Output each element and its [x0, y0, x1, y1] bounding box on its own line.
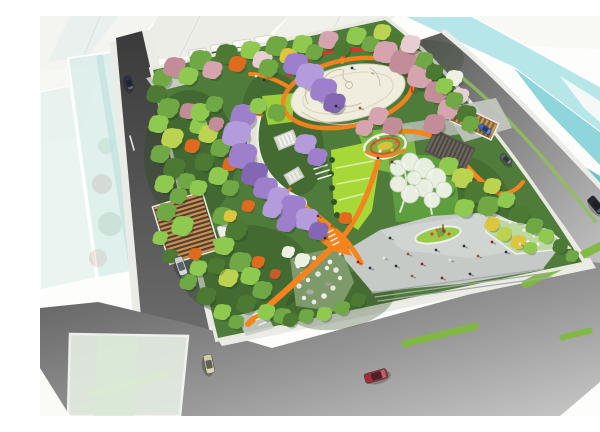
tree-canopy	[264, 288, 272, 296]
tree-canopy	[307, 315, 313, 321]
tree-canopy	[217, 238, 225, 246]
white-blossoms	[315, 271, 321, 277]
tree-canopy	[364, 36, 371, 43]
tree-canopy	[438, 78, 445, 85]
tree-canopy	[243, 268, 251, 276]
tree-canopy	[567, 250, 573, 256]
tree-canopy	[500, 192, 507, 199]
tree-canopy	[216, 304, 223, 311]
person-figure	[395, 265, 398, 268]
tree-canopy	[313, 79, 324, 90]
tree-canopy	[531, 247, 536, 252]
tree-canopy	[160, 99, 169, 108]
tree-canopy	[522, 212, 530, 220]
tree-canopy	[343, 307, 349, 313]
tree-canopy	[270, 66, 278, 74]
tree-canopy	[276, 273, 280, 277]
tree-canopy	[459, 106, 467, 114]
white-canopy-trees	[390, 176, 406, 192]
tree-canopy	[224, 180, 231, 187]
person-figure	[331, 225, 334, 228]
tree-canopy	[340, 212, 346, 218]
tree-canopy	[153, 146, 161, 154]
tree-canopy	[336, 301, 342, 307]
person-figure	[369, 71, 372, 74]
tree-canopy	[426, 58, 433, 65]
person-figure	[411, 275, 414, 278]
tree-canopy	[271, 269, 276, 274]
tree-canopy	[385, 118, 393, 126]
tree-canopy	[352, 293, 358, 299]
person-figure	[357, 261, 360, 264]
tree-canopy	[217, 123, 223, 129]
tree-canopy	[230, 276, 238, 284]
white-blossoms	[306, 278, 310, 282]
tree-canopy	[498, 227, 504, 233]
tree-canopy	[467, 182, 477, 192]
tree-canopy	[268, 37, 277, 46]
tree-canopy	[486, 178, 493, 185]
flower-dots	[395, 141, 398, 144]
tree-canopy	[232, 186, 239, 193]
tree-canopy	[218, 264, 225, 271]
hedge	[329, 185, 335, 191]
tree-canopy	[486, 217, 492, 223]
tree-canopy	[480, 197, 489, 206]
tree-canopy	[162, 152, 170, 160]
tree-canopy	[291, 319, 297, 325]
tree-canopy	[286, 54, 296, 64]
tree-canopy	[319, 155, 327, 163]
tree-canopy	[216, 102, 223, 109]
tree-canopy	[181, 68, 189, 76]
person-figure	[519, 243, 522, 246]
tree-canopy	[418, 52, 425, 59]
tree-canopy	[346, 217, 351, 222]
tree-canopy	[448, 70, 455, 77]
tree-canopy	[208, 294, 216, 302]
tree-canopy	[232, 144, 244, 156]
white-blossoms	[338, 276, 342, 280]
tree-canopy	[231, 56, 238, 63]
tree-canopy	[508, 198, 515, 205]
tree-canopy	[326, 94, 335, 103]
tree-canopy	[260, 304, 267, 311]
rock	[325, 282, 332, 286]
tree-canopy	[244, 163, 255, 174]
tree-canopy	[282, 48, 289, 55]
tree-canopy	[243, 200, 249, 206]
tree-canopy	[231, 215, 236, 220]
tree-canopy	[192, 180, 199, 187]
tree-canopy	[202, 110, 210, 118]
rock	[306, 290, 314, 295]
tree-canopy	[456, 76, 463, 83]
tree-canopy	[376, 42, 386, 52]
tree-canopy	[493, 223, 499, 229]
tree-canopy	[199, 288, 207, 296]
tree-canopy	[284, 313, 290, 319]
tree-canopy	[336, 101, 344, 109]
tree-canopy	[174, 217, 183, 226]
tree-canopy	[282, 196, 293, 207]
tree-canopy	[547, 235, 553, 241]
tree-canopy	[210, 258, 217, 265]
tree-canopy	[256, 178, 266, 188]
flower-dots	[372, 141, 375, 144]
person-figure	[324, 237, 327, 240]
tree-canopy	[232, 253, 241, 262]
tree-canopy	[255, 282, 263, 290]
tree-canopy	[200, 186, 207, 193]
tree-canopy	[325, 313, 331, 319]
tree-canopy	[253, 256, 259, 262]
tree-canopy	[297, 135, 306, 144]
tree-canopy	[225, 210, 231, 216]
tree-canopy	[182, 103, 189, 110]
person-figure	[491, 241, 494, 244]
person-figure	[469, 273, 472, 276]
tree-canopy	[210, 117, 216, 123]
tree-canopy	[494, 184, 501, 191]
tree-canopy	[161, 237, 167, 243]
white-blossoms	[333, 267, 339, 273]
tree-canopy	[276, 308, 283, 315]
person-figure	[435, 249, 438, 252]
tree-canopy	[215, 208, 223, 216]
tree-canopy	[226, 122, 238, 134]
tree-canopy	[184, 224, 192, 232]
tree-canopy	[457, 200, 465, 208]
leaf-island-flowers	[430, 232, 433, 235]
white-blossoms	[325, 266, 329, 270]
tree-canopy	[255, 52, 263, 60]
rendering-canvas	[40, 16, 600, 416]
tree-canopy	[190, 248, 196, 254]
tree-canopy	[336, 40, 343, 47]
person-figure	[389, 237, 392, 240]
tree-canopy	[456, 98, 463, 105]
tree-canopy	[164, 76, 172, 84]
tree-canopy	[412, 42, 420, 50]
se-garden-blossoms	[508, 220, 511, 223]
tree-canopy	[359, 299, 365, 305]
tree-canopy	[436, 122, 444, 130]
person-figure	[407, 253, 410, 256]
hedge	[331, 199, 337, 205]
tree-canopy	[436, 70, 443, 77]
tree-canopy	[176, 166, 184, 174]
hedge	[329, 157, 335, 163]
flower-dots	[378, 149, 381, 152]
tree-canopy	[193, 104, 201, 112]
tree-canopy	[389, 33, 395, 39]
tree-canopy	[206, 160, 214, 168]
tree-canopy	[513, 206, 521, 214]
tree-canopy	[239, 131, 250, 142]
tree-canopy	[270, 188, 279, 197]
tree-canopy	[180, 173, 187, 180]
person-figure	[463, 245, 466, 248]
tree-canopy	[249, 205, 254, 210]
tree-canopy	[320, 229, 328, 237]
tree-canopy	[316, 50, 323, 57]
tree-canopy	[239, 62, 246, 69]
tree-canopy	[220, 174, 228, 182]
tree-canopy	[288, 221, 296, 229]
tree-canopy	[160, 122, 168, 130]
white-canopy-trees	[436, 182, 452, 198]
tree-canopy	[205, 62, 213, 70]
tree-canopy	[303, 259, 309, 265]
tree-canopy	[174, 136, 182, 144]
tree-canopy	[155, 70, 163, 78]
tree-canopy	[259, 261, 264, 266]
tree-canopy	[505, 233, 511, 239]
tree-canopy	[528, 218, 535, 225]
tree-canopy	[237, 321, 243, 327]
tree-canopy	[274, 207, 282, 215]
tree-canopy	[466, 206, 474, 214]
person-figure	[441, 277, 444, 280]
flower-dots	[377, 137, 380, 140]
leaf-island-flowers	[448, 233, 451, 236]
tree-canopy	[233, 105, 244, 116]
leaf-island-flowers	[438, 235, 441, 238]
tree-canopy	[289, 251, 294, 256]
tree-canopy	[186, 139, 192, 145]
white-blossoms	[302, 296, 306, 300]
person-figure	[317, 215, 320, 218]
tree-canopy	[201, 126, 209, 134]
tree-canopy	[238, 228, 246, 236]
tree-canopy	[149, 86, 157, 94]
tree-canopy	[366, 126, 373, 133]
tree-canopy	[166, 58, 175, 67]
person-figure	[335, 105, 338, 108]
tree-canopy	[230, 315, 236, 321]
flower-dots	[390, 148, 394, 152]
white-blossoms	[312, 300, 317, 305]
tree-canopy	[472, 122, 479, 129]
tree-canopy	[376, 24, 383, 31]
tree-canopy	[270, 104, 277, 111]
glass-box-sw-facet	[94, 335, 138, 416]
tree-canopy	[157, 176, 165, 184]
person-figure	[351, 67, 354, 70]
person-figure	[263, 79, 266, 82]
tree-canopy	[252, 274, 260, 282]
tree-canopy	[297, 209, 307, 219]
tree-canopy	[190, 74, 198, 82]
tree-canopy	[403, 36, 411, 44]
white-blossoms	[330, 285, 335, 290]
person-figure	[449, 259, 452, 262]
tree-canopy	[358, 120, 365, 127]
tree-canopy	[239, 296, 247, 304]
person-figure	[359, 107, 362, 110]
tree-canopy	[200, 266, 207, 273]
tree-canopy	[525, 242, 531, 248]
tree-canopy	[428, 64, 435, 71]
tree-canopy	[252, 98, 259, 105]
tree-canopy	[190, 280, 197, 287]
tree-canopy	[260, 104, 267, 111]
tree-canopy	[166, 182, 174, 190]
tree-canopy	[210, 132, 218, 140]
person-figure	[505, 251, 508, 254]
person-figure	[421, 263, 424, 266]
tree-canopy	[490, 204, 498, 212]
tree-canopy	[295, 36, 303, 44]
tree-canopy	[243, 42, 251, 50]
tree-canopy	[426, 115, 435, 124]
tree-canopy	[371, 108, 379, 116]
tree-canopy	[180, 194, 187, 201]
tree-canopy	[561, 245, 567, 251]
tree-canopy	[464, 116, 471, 123]
person-figure	[383, 257, 386, 260]
tree-canopy	[193, 145, 199, 151]
tree-canopy	[172, 188, 179, 195]
tree-canopy	[226, 244, 234, 252]
tree-canopy	[168, 210, 176, 218]
tree-canopy	[349, 28, 357, 36]
tree-canopy	[321, 32, 329, 40]
tree-canopy	[261, 60, 269, 68]
tree-canopy	[554, 239, 560, 245]
tree-canopy	[299, 64, 311, 76]
tree-canopy	[214, 68, 222, 76]
person-figure	[255, 75, 258, 78]
tree-canopy	[392, 51, 403, 62]
tree-canopy	[310, 149, 318, 157]
tree-canopy	[224, 310, 231, 317]
tree-canopy	[192, 260, 199, 267]
tree-canopy	[213, 140, 221, 148]
tree-canopy	[164, 129, 173, 138]
tree-canopy	[318, 307, 324, 313]
se-garden-blossoms	[522, 228, 525, 231]
tree-canopy	[394, 124, 402, 132]
tree-canopy	[536, 224, 543, 231]
tree-canopy	[344, 46, 351, 53]
person-figure	[339, 253, 342, 256]
tree-canopy	[296, 253, 302, 259]
tree-canopy	[308, 44, 315, 51]
person-figure	[377, 157, 380, 160]
tree-canopy	[454, 169, 463, 178]
tree-canopy	[573, 255, 578, 260]
tree-canopy	[154, 231, 160, 237]
tree-canopy	[278, 110, 285, 117]
tree-canopy	[446, 84, 453, 91]
tree-canopy	[441, 158, 449, 166]
park-rendering: Aerial architectural rendering of an urb…	[40, 16, 600, 416]
tree-canopy	[197, 154, 205, 162]
tree-canopy	[512, 235, 518, 241]
tree-canopy	[208, 96, 215, 103]
leaf-island-flowers	[435, 228, 438, 231]
tree-canopy	[218, 45, 227, 54]
tree-canopy	[300, 309, 306, 315]
tree-canopy	[164, 249, 170, 255]
person-figure	[477, 255, 480, 258]
tree-canopy	[540, 229, 546, 235]
tree-canopy	[448, 92, 455, 99]
tree-canopy	[268, 310, 275, 317]
person-figure	[391, 161, 394, 164]
tree-canopy	[248, 302, 256, 310]
white-canopy-trees	[407, 171, 421, 185]
tree-canopy	[222, 146, 230, 154]
tree-canopy	[192, 51, 201, 60]
tree-canopy	[166, 159, 175, 168]
tree-canopy	[151, 116, 159, 124]
flower-dots	[387, 137, 390, 140]
white-blossoms	[321, 293, 327, 299]
tree-canopy	[211, 168, 219, 176]
white-blossoms	[328, 260, 333, 265]
tree-canopy	[265, 201, 273, 209]
tree-canopy	[245, 114, 255, 124]
tree-canopy	[283, 246, 289, 252]
person-figure	[369, 267, 372, 270]
tree-canopy	[159, 204, 167, 212]
tree-canopy	[170, 106, 178, 114]
tree-canopy	[311, 223, 319, 231]
tree-canopy	[196, 253, 201, 258]
